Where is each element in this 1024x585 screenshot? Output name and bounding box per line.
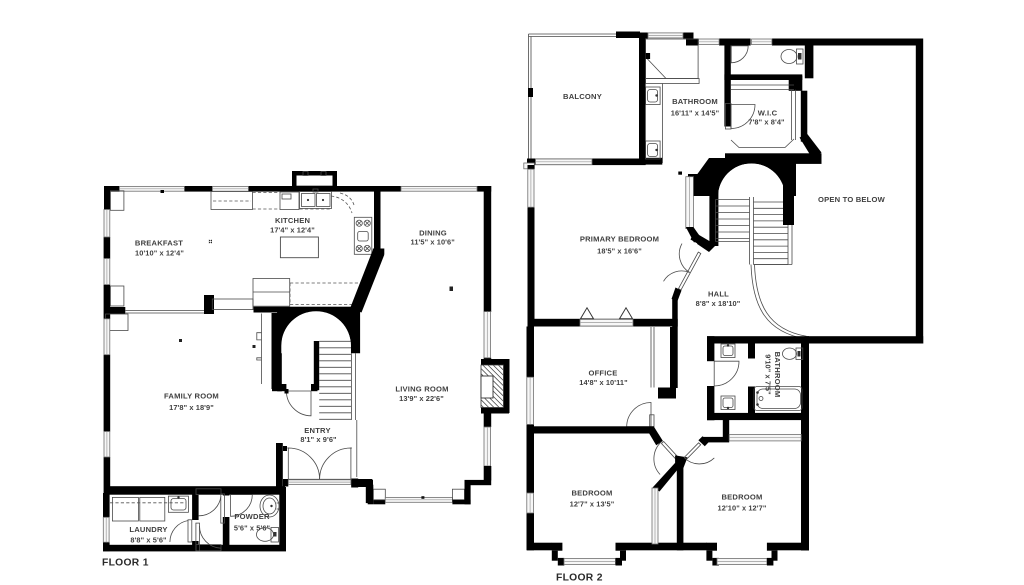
svg-text:FAMILY ROOM: FAMILY ROOM [164,392,219,401]
svg-text:W.I.C: W.I.C [758,108,778,117]
svg-text:13'9" x 22'6": 13'9" x 22'6" [399,394,444,403]
svg-text:BEDROOM: BEDROOM [721,493,762,502]
svg-text:PRIMARY BEDROOM: PRIMARY BEDROOM [580,234,659,243]
svg-text:FLOOR 2: FLOOR 2 [556,573,603,584]
svg-text:BREAKFAST: BREAKFAST [135,239,183,248]
svg-text:8'8" x 18'10": 8'8" x 18'10" [696,299,741,308]
svg-text:BATHROOM: BATHROOM [773,352,782,398]
svg-text:KITCHEN: KITCHEN [275,216,310,225]
svg-text:OFFICE: OFFICE [588,368,617,377]
svg-text:DINING: DINING [419,229,447,238]
svg-text:7'8" x 8'4": 7'8" x 8'4" [748,117,785,126]
svg-text:POWDER: POWDER [234,512,270,521]
svg-text:ENTRY: ENTRY [304,426,330,435]
svg-text:HALL: HALL [708,289,729,298]
svg-text:LIVING ROOM: LIVING ROOM [395,384,448,393]
svg-text:8'1" x 9'6": 8'1" x 9'6" [300,435,337,444]
svg-text:12'10" x 12'7": 12'10" x 12'7" [718,504,767,513]
svg-text:10'10" x 12'4": 10'10" x 12'4" [135,248,184,257]
svg-text:18'5" x 16'6": 18'5" x 16'6" [597,246,642,255]
svg-text:BATHROOM: BATHROOM [672,97,718,106]
svg-text:8'8" x 5'6": 8'8" x 5'6" [130,536,167,545]
svg-text:LAUNDRY: LAUNDRY [129,525,167,534]
svg-text:OPEN TO BELOW: OPEN TO BELOW [818,195,886,204]
svg-text:14'8" x 10'11": 14'8" x 10'11" [579,378,628,387]
svg-text:17'4" x 12'4": 17'4" x 12'4" [270,226,315,235]
svg-text:17'8" x 18'9": 17'8" x 18'9" [169,403,214,412]
svg-text:BEDROOM: BEDROOM [571,488,612,497]
svg-text:11'5" x 10'6": 11'5" x 10'6" [411,238,456,247]
svg-text:5'6" x 5'6": 5'6" x 5'6" [234,524,271,533]
svg-text:9'10" x 7'5": 9'10" x 7'5" [764,354,773,395]
svg-text:BALCONY: BALCONY [563,92,602,101]
svg-text:FLOOR 1: FLOOR 1 [102,558,149,569]
svg-text:12'7" x 13'5": 12'7" x 13'5" [570,500,615,509]
svg-text:16'11" x 14'5": 16'11" x 14'5" [671,109,720,118]
